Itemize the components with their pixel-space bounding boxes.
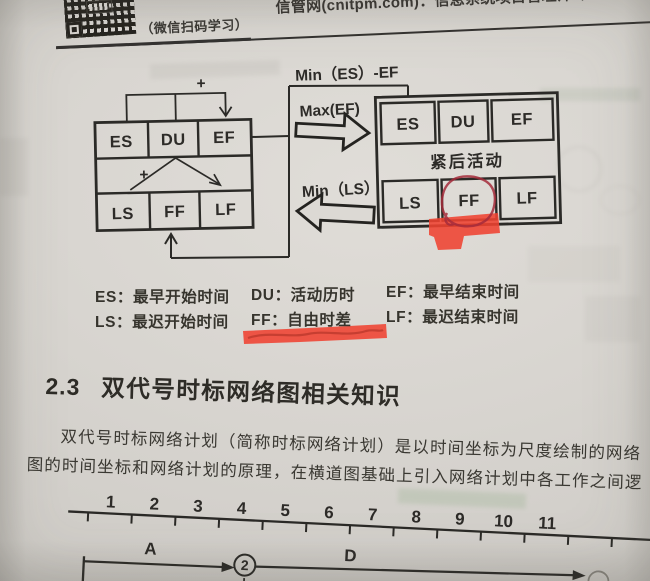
- right-cell-lf: LF: [516, 189, 538, 208]
- tick-label: 2: [149, 494, 159, 513]
- connector-lines: [165, 86, 408, 259]
- tick-label: 9: [455, 509, 465, 528]
- right-cell-ef: EF: [511, 110, 534, 129]
- tick-label: 5: [280, 501, 290, 520]
- left-activity-box-diagram: + + ES DU EF LS FF LF: [94, 74, 253, 230]
- qr-center-band: [86, 0, 113, 14]
- right-cell-ff: FF: [458, 192, 480, 211]
- site-banner: 信管网(cnitpm.com)：信息系统项目管理师专业网站: [275, 0, 633, 18]
- right-cell-successor-activity: 紧后活动: [430, 150, 504, 172]
- left-cell-ff: FF: [164, 203, 186, 221]
- book-page-photo: （微信扫码学习） 信管网(cnitpm.com)：信息系统项目管理师专业网站 +: [0, 0, 650, 581]
- arrowhead-d: [572, 570, 585, 581]
- node-2-label: 2: [241, 557, 250, 573]
- ls-plus-du-line: [130, 158, 177, 190]
- qr-caption: （微信扫码学习）: [140, 14, 249, 38]
- qr-code-icon: [63, 0, 136, 39]
- tick-label: 10: [494, 511, 514, 531]
- legend-es: ES：最早开始时间: [95, 285, 230, 307]
- plus-sign-top: +: [196, 75, 205, 92]
- right-cell-es: ES: [396, 115, 419, 134]
- legend-lf: LF：最迟结束时间: [386, 305, 519, 327]
- legend-du: DU：活动历时: [251, 283, 355, 305]
- left-cell-ef: EF: [213, 129, 235, 147]
- tick-label: 8: [411, 507, 421, 526]
- network-diagram-fragment: A 2 D: [82, 533, 609, 581]
- plus-sign-middle: +: [139, 167, 148, 184]
- partial-node-circle: [588, 571, 609, 581]
- activity-d-label: D: [344, 546, 357, 566]
- tick-label: 6: [324, 503, 334, 522]
- arrowhead-a: [221, 562, 234, 573]
- label-min-es-minus-ef: Min（ES）-EF: [295, 63, 399, 85]
- right-cell-ls: LS: [399, 194, 422, 213]
- right-activity-box-diagram: ES DU EF 紧后活动 LS FF LF: [375, 93, 560, 228]
- timeline-numbers: 1 2 3 4 5 6 7 8 9 10 11: [106, 492, 557, 533]
- left-cell-ls: LS: [112, 205, 134, 223]
- activity-a-label: A: [144, 539, 157, 559]
- activity-a-arrow-line: [84, 560, 224, 568]
- left-cell-lf: LF: [215, 201, 237, 219]
- qr-finder-square: [66, 22, 82, 38]
- section-number: 2.3: [45, 373, 81, 400]
- left-cell-es: ES: [110, 133, 133, 151]
- tick-label: 1: [106, 492, 116, 511]
- tick-label: 4: [236, 499, 247, 518]
- activity-d-line: [256, 560, 576, 581]
- legend-ef: EF：最早结束时间: [386, 280, 520, 302]
- right-cell-du: DU: [450, 113, 475, 132]
- tick-label: 11: [538, 513, 557, 533]
- tick-label: 3: [193, 497, 203, 516]
- tick-label: 7: [367, 505, 377, 524]
- legend-ff: FF：自由时差: [251, 308, 352, 330]
- legend-ls: LS：最迟开始时间: [95, 310, 229, 332]
- label-min-ls: Min（LS）: [302, 179, 380, 201]
- header-rule-thick-segment: [56, 37, 251, 49]
- left-cell-du: DU: [161, 131, 186, 150]
